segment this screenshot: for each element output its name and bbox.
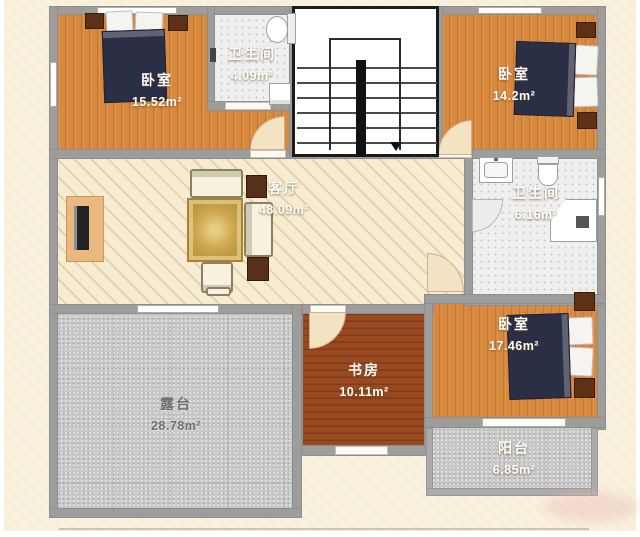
room-label-bedroom-bottom-right: 卧室 17.46m²	[466, 314, 562, 353]
room-area: 6.85m²	[466, 463, 562, 477]
room-area: 10.11m²	[316, 385, 412, 399]
window	[482, 418, 566, 427]
room-label-balcony: 阳台 6.85m²	[466, 438, 562, 477]
room-area: 28.78m²	[128, 419, 224, 433]
wall	[597, 6, 606, 430]
room-label-living-room: 客厅 48.09m²	[236, 178, 332, 217]
room-area: 48.09m²	[236, 203, 332, 217]
room-name: 露台	[128, 394, 224, 414]
window	[50, 62, 57, 107]
nightstand-icon	[577, 112, 597, 129]
door-threshold	[225, 102, 271, 110]
nightstand-icon	[576, 22, 596, 38]
room-name: 卫生间	[204, 44, 300, 64]
balcony-wall	[591, 428, 598, 496]
room-label-bedroom-top-right: 卧室 14.2m²	[466, 64, 562, 103]
room-name: 卧室	[109, 70, 205, 90]
nightstand-icon	[168, 15, 188, 31]
door-threshold	[250, 150, 286, 158]
room-name: 卧室	[466, 64, 562, 84]
wall	[49, 508, 302, 518]
side-table-icon	[247, 257, 269, 281]
armchair-base-icon	[206, 287, 231, 296]
floor-plan-photo: 卧室 15.52m² 卫生间 4.09m² 卧室 14.2m² 客厅 48.09…	[0, 0, 640, 537]
wall	[292, 304, 302, 518]
terrace-door-opening	[137, 305, 219, 313]
room-area: 4.09m²	[204, 69, 300, 83]
room-area: 14.2m²	[466, 89, 562, 103]
room-area: 17.46m²	[466, 339, 562, 353]
door-threshold	[335, 446, 388, 455]
stair-divider	[356, 60, 366, 157]
floor-plan: 卧室 15.52m² 卫生间 4.09m² 卧室 14.2m² 客厅 48.09…	[4, 0, 636, 531]
tap-icon	[494, 158, 498, 161]
watermark-smudge	[544, 492, 639, 522]
room-name: 卫生间	[488, 183, 584, 203]
room-name: 阳台	[466, 438, 562, 458]
room-area: 15.52m²	[109, 95, 205, 109]
window	[478, 7, 542, 14]
room-area: 6.16m²	[488, 208, 584, 222]
photo-edge-line	[59, 528, 589, 530]
nightstand-icon	[85, 13, 104, 29]
nightstand-icon	[574, 292, 595, 311]
room-label-bathroom-right: 卫生间 6.16m²	[488, 183, 584, 222]
tv-icon	[74, 206, 89, 250]
toilet-tank-icon	[287, 13, 296, 44]
balcony-wall	[426, 428, 433, 494]
rug	[187, 198, 243, 262]
room-name: 书房	[316, 360, 412, 380]
room-name: 客厅	[236, 178, 332, 198]
toilet-icon	[266, 16, 288, 43]
room-label-bathroom-top: 卫生间 4.09m²	[204, 44, 300, 83]
toilet-tank-icon	[537, 156, 559, 164]
sink-basin-icon	[484, 162, 508, 178]
room-label-bedroom-top-left: 卧室 15.52m²	[109, 70, 205, 109]
room-name: 卧室	[466, 314, 562, 334]
window	[598, 177, 605, 216]
washer-icon	[269, 83, 291, 105]
room-label-terrace: 露台 28.78m²	[128, 394, 224, 433]
nightstand-icon	[574, 378, 595, 398]
room-label-study: 书房 10.11m²	[316, 360, 412, 399]
stairs-down-arrow-icon	[390, 142, 402, 151]
